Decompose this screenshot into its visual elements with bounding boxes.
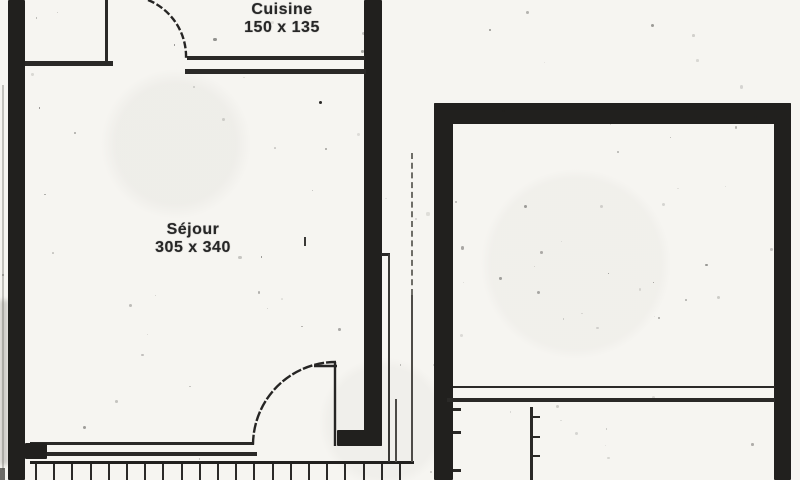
railing-tick	[71, 464, 73, 480]
scan-speck	[304, 237, 306, 246]
scan-speck	[653, 282, 654, 283]
sejour-window-line-lower	[30, 452, 257, 456]
scan-speck	[544, 62, 545, 63]
scan-smudge	[0, 300, 8, 465]
window-left-pier	[25, 443, 47, 459]
terrace-inner-line	[395, 399, 397, 462]
scan-speck	[31, 73, 33, 75]
scan-speck	[52, 252, 54, 254]
scan-speck	[243, 77, 244, 78]
scan-speck	[510, 411, 512, 413]
scan-speck	[677, 188, 678, 189]
scan-speck	[639, 288, 641, 290]
scan-speck	[36, 17, 38, 19]
scan-speck	[561, 241, 562, 242]
railing-tick	[108, 464, 110, 480]
scan-speck	[271, 21, 274, 24]
scan-speck	[607, 457, 610, 460]
scan-speck	[2, 274, 4, 276]
wall-right-unit-top	[434, 103, 791, 124]
railing-tick	[217, 464, 219, 480]
scan-speck	[44, 194, 45, 195]
scan-speck	[155, 295, 156, 296]
scan-speck	[581, 313, 583, 315]
scan-speck	[524, 205, 527, 208]
scan-speck	[606, 428, 607, 429]
scan-speck	[319, 101, 322, 104]
right-unit-interior-line-upper	[453, 386, 775, 388]
scan-speck	[174, 44, 176, 46]
railing-tick	[326, 464, 328, 480]
scan-speck	[770, 248, 773, 251]
scan-speck	[705, 264, 707, 266]
railing-tick	[308, 464, 310, 480]
room-dimensions: 305 x 340	[138, 239, 248, 256]
railing-tick	[53, 464, 55, 480]
wall-right-of-sejour	[364, 0, 382, 446]
wall-right-unit-right	[774, 103, 791, 480]
scan-speck	[199, 458, 200, 459]
scan-speck	[426, 212, 429, 215]
scan-speck	[670, 137, 671, 138]
scan-speck	[534, 266, 535, 267]
scan-speck	[39, 107, 41, 109]
room-dimensions: 150 x 135	[222, 19, 342, 36]
door-swing-overlay	[0, 0, 800, 480]
scan-speck	[83, 426, 86, 429]
scan-speck	[651, 24, 654, 27]
scan-speck	[281, 298, 283, 300]
scan-speck	[489, 29, 491, 31]
scan-speck	[267, 308, 268, 309]
scan-smudge	[0, 468, 5, 480]
railing-tick	[181, 464, 183, 480]
scan-speck	[258, 291, 261, 294]
terrace-edge-line	[388, 254, 390, 462]
scan-speck	[455, 201, 456, 202]
scan-speck	[312, 190, 313, 191]
scan-speck	[213, 38, 216, 41]
railing-tick	[253, 464, 255, 480]
scan-speck	[537, 291, 540, 294]
cuisine-partition-line-upper	[187, 56, 365, 60]
scan-speck	[556, 405, 559, 408]
scan-speck	[662, 203, 665, 206]
room-name: Cuisine	[222, 1, 342, 18]
scan-speck	[735, 126, 738, 129]
scan-speck	[189, 386, 190, 387]
wall-corner-bottom-right	[337, 430, 382, 446]
scan-speck	[20, 73, 23, 76]
scan-speck	[115, 400, 118, 403]
cuisine-door-arc	[148, 0, 186, 59]
scan-speck	[575, 432, 578, 435]
scan-speck	[460, 334, 463, 337]
stair-tick	[533, 436, 540, 438]
scan-speck	[222, 118, 225, 121]
scan-speck	[652, 396, 655, 399]
boundary-solid-line	[411, 295, 413, 462]
cuisine-partition-line-lower	[185, 69, 366, 74]
scan-speck	[461, 246, 464, 249]
scan-speck	[563, 318, 565, 320]
scan-speck	[754, 116, 757, 119]
scan-speck	[617, 151, 619, 153]
wall-right-unit-left	[434, 103, 453, 480]
scan-speck	[658, 317, 660, 319]
scan-speck	[610, 124, 611, 125]
scan-speck	[751, 443, 753, 445]
scan-speck	[560, 420, 561, 421]
sejour-door-arc	[253, 362, 336, 445]
scan-speck	[526, 11, 529, 14]
scan-speck	[261, 256, 263, 258]
scan-speck	[301, 326, 303, 328]
railing-tick	[381, 464, 383, 480]
scan-speck	[361, 50, 363, 52]
scan-speck	[357, 133, 360, 136]
right-unit-interior-line-lower	[447, 398, 775, 402]
stair-tick	[533, 416, 540, 418]
room-label-sejour: Séjour 305 x 340	[138, 221, 248, 256]
scan-speck	[338, 328, 341, 331]
scan-speck	[608, 273, 609, 274]
scan-speck	[600, 205, 603, 208]
scan-speck	[430, 471, 432, 473]
closet-bottom-line	[25, 61, 113, 66]
railing-tick	[35, 464, 37, 480]
room-label-cuisine: Cuisine 150 x 135	[222, 1, 342, 36]
stair-tick	[453, 469, 461, 472]
scan-speck	[274, 147, 276, 149]
closet-right-line	[105, 0, 108, 64]
scan-speck	[725, 186, 726, 187]
railing-tick	[90, 464, 92, 480]
scan-speck	[685, 299, 687, 301]
stair-tick	[453, 431, 461, 434]
railing-tick	[162, 464, 164, 480]
scan-speck	[325, 148, 327, 150]
railing-tick	[144, 464, 146, 480]
scan-speck	[596, 327, 598, 329]
scan-speck	[540, 251, 543, 254]
railing-tick	[363, 464, 365, 480]
scan-speck	[654, 316, 656, 318]
scan-speck	[400, 364, 402, 366]
railing-tick	[126, 464, 128, 480]
stair-tick	[453, 408, 461, 411]
scan-speck	[193, 86, 195, 88]
scan-speck	[463, 282, 464, 283]
scan-speck	[717, 296, 720, 299]
scan-speck	[696, 59, 699, 62]
wall-left-exterior	[8, 0, 25, 480]
railing-tick	[235, 464, 237, 480]
scan-speck	[499, 277, 501, 279]
boundary-dashed-line	[411, 153, 413, 295]
stair-tick	[533, 455, 540, 457]
balcony-railing	[30, 461, 414, 480]
scan-speck	[147, 334, 148, 335]
scan-speck	[141, 354, 144, 357]
railing-tick	[344, 464, 346, 480]
scan-speck	[129, 304, 132, 307]
scan-speck	[605, 445, 606, 446]
railing-tick	[399, 464, 401, 480]
sejour-window-line-upper	[30, 442, 254, 445]
scan-speck	[74, 132, 76, 134]
scan-speck	[415, 218, 417, 220]
scan-speck	[385, 198, 386, 199]
room-name: Séjour	[138, 221, 248, 238]
scan-speck	[740, 85, 743, 88]
scan-speck	[238, 256, 241, 259]
railing-tick	[272, 464, 274, 480]
floor-plan: Cuisine 150 x 135 Séjour 305 x 340	[0, 0, 800, 480]
scan-speck	[692, 34, 695, 37]
railing-tick	[199, 464, 201, 480]
railing-tick	[290, 464, 292, 480]
scan-speck	[57, 12, 58, 13]
